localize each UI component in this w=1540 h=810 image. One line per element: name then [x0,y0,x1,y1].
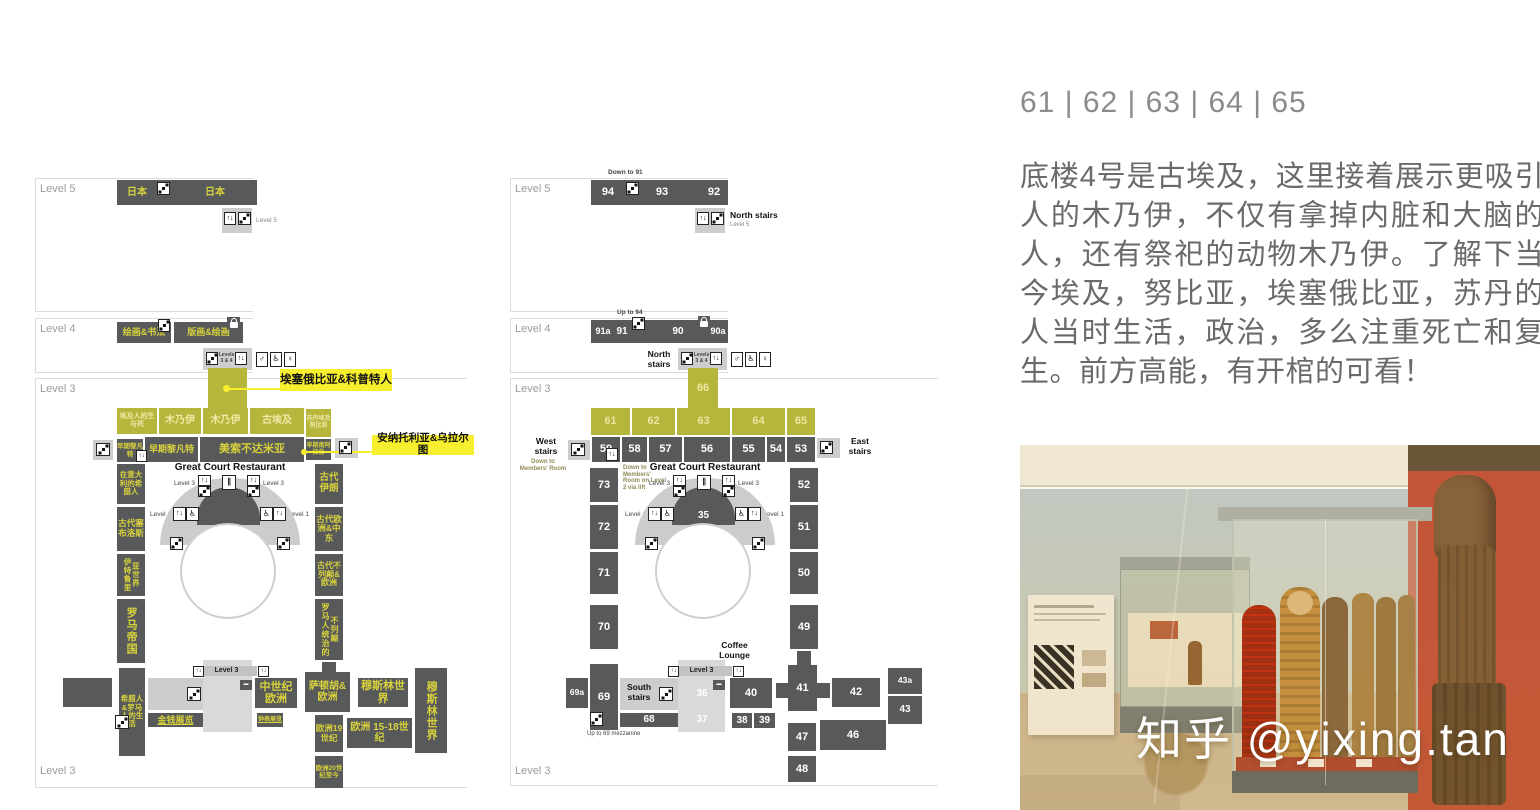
room-91: 91 [614,320,630,343]
stairs-icon [722,486,735,497]
room-37: 37 [690,713,714,727]
south-stairs-label: South stairs [623,683,655,702]
panel-photo [1082,650,1106,666]
money-gallery-label: 金钱展览 [157,715,193,725]
room-europe-20th: 欧洲20世纪至今 [315,756,343,788]
room-38: 38 [732,713,752,728]
room-49: 49 [790,605,818,649]
stairs-icon [206,352,218,365]
restaurant-icon: ∥ [697,475,711,490]
panel-photo [1082,673,1106,687]
stairs-icon [590,712,603,726]
museum-photo: 知乎 @yixing.tan [1020,445,1540,810]
stairs-icon [158,319,170,332]
room-36: 36 [690,687,714,701]
level3-bottom-label: Level 3 [40,765,75,777]
male-toilet-icon: ♂ [256,352,268,367]
room-93: 93 [652,180,672,205]
stairs-icon [673,486,686,497]
room-39: 39 [754,713,775,728]
room-68: 68 [620,713,678,727]
room-65: 65 [787,408,815,435]
lift-icon: ↑↓ [697,212,709,225]
stairs-icon [632,317,645,330]
stairs-icon [170,537,183,550]
room-egypt-life-death: 埃及人的生与死 [117,408,157,434]
page: Level 5 Level 4 Level 3 Level 3 日本 日本 ↑↓… [0,0,1540,810]
coffee-lounge-label: Coffee Lounge [707,641,762,660]
case-panels [1128,613,1242,687]
reading-room-circle [655,523,751,619]
level4-label: Level 4 [40,323,75,335]
room-japan-2: 日本 [201,180,229,205]
clocks-gallery-label: 钟表展览 [258,717,282,724]
shop-icon: ▬ [713,680,725,690]
watermark: 知乎 @yixing.tan [1136,703,1536,769]
room-64: 64 [732,408,785,435]
female-toilet-icon: ♀ [284,352,296,367]
levels-3-4-badge: Levels 3 & 4 [694,351,709,367]
room-early-south-arabia: 早期南阿拉伯 [306,439,331,460]
stairs-icon [198,486,211,497]
room-53: 53 [787,437,815,462]
stairs-icon [157,182,170,195]
room-47: 47 [788,723,816,751]
room-muslim-world-gallery: 穆斯林世界 [415,668,447,753]
level3-side-label: Level 3 [161,480,195,487]
room-money-gallery: 金钱展览 [148,713,203,727]
panel-text-line [1034,613,1106,615]
room-66: 66 [688,368,718,408]
room-73: 73 [590,468,618,502]
north-stairs-level: Level 5 [730,222,749,229]
room-52: 52 [790,468,818,502]
lift-icon: ↑↓ [733,666,744,677]
room-early-levant: 早期黎凡特 [145,437,198,462]
stairs-icon [238,212,251,225]
wheelchair-icon: ♿ [260,507,273,521]
lock-icon [227,317,240,329]
callout-line [230,388,280,390]
room-43a: 43a [888,668,922,694]
room-sutton-hoo-europe: 萨顿胡&欧洲 [305,672,350,712]
level3-side-label: Level 3 [738,480,772,487]
lift-icon: ↑↓ [258,666,269,677]
room-europe-19th: 欧洲19世纪 [315,715,343,752]
room-62: 62 [632,408,675,435]
stairs-icon [820,441,833,454]
room-roman-britain: 罗马人统治的不列颠 [315,599,343,660]
stairs-icon [571,443,585,456]
statue-body [1438,545,1496,691]
stairs-icon [752,537,765,550]
room-69a: 69a [566,678,588,708]
wheelchair-icon: ♿ [735,507,748,521]
level3-strip: Level 3 [671,666,732,676]
lift-icon: ↑↓ [710,352,722,365]
room-63: 63 [677,408,730,435]
level5-label: Level 5 [515,183,550,195]
level3-side-label: Level 3 [263,480,297,487]
great-court-restaurant-label: Great Court Restaurant [625,463,785,473]
wheelchair-icon: ♿ [186,507,199,521]
room-etruscan-world: 伊特鲁里亚世界 [117,554,145,596]
female-toilet-icon: ♀ [759,352,771,367]
room-94: 94 [598,180,618,205]
lift-icon: ↑↓ [136,450,147,462]
stairs-icon [277,537,290,550]
restaurant-icon: ∥ [222,475,236,490]
room-54: 54 [767,437,785,462]
article-paragraph: 底楼4号是古埃及，这里接着展示更吸引人的木乃伊，不仅有拿掉内脏和大脑的人，还有祭… [1020,158,1540,392]
room-46: 46 [820,720,886,750]
room-58: 58 [622,437,647,462]
room-40: 40 [730,678,772,708]
wheelchair-icon: ♿ [745,352,757,367]
room-clocks-gallery: 钟表展览 [257,713,283,727]
room-ancient-iran: 古代伊朗 [315,464,343,504]
room-90a: 90a [708,320,728,343]
male-toilet-icon: ♂ [731,352,743,367]
stairs-icon [115,715,129,729]
lift-icon: ↑↓ [247,475,260,486]
lift-icon: ↑↓ [606,448,618,461]
room-43: 43 [888,696,922,724]
callout-dot [223,385,230,392]
room-greek-roman-life: 希腊人&罗马人的生活 [119,668,145,756]
floor-map-chinese: Level 5 Level 4 Level 3 Level 3 日本 日本 ↑↓… [35,175,480,810]
level3-label: Level 3 [40,383,75,395]
wheelchair-icon: ♿ [270,352,282,367]
level5-note: Level 5 [256,217,277,224]
room-mummies-1: 木乃伊 [159,408,201,434]
east-stairs-label: East stairs [843,437,877,456]
room-muslim-world: 穆斯林世界 [358,678,408,707]
room-sudan-egypt-nubia: 苏丹埃及努比亚 [306,409,331,437]
room-medieval-europe: 中世纪欧洲 [255,678,297,708]
room-41: 41 [788,665,817,711]
room-block [63,678,112,707]
west-stairs-note: Down to Members' Room [518,459,568,472]
room-japan-1: 日本 [123,180,151,205]
room-70: 70 [590,605,618,649]
lock-icon [698,316,710,328]
level3-bottom-label: Level 3 [515,765,550,777]
room-greeks-in-italy: 在意大利的希腊人 [117,464,145,504]
floor-map-numbers: Level 5 Level 4 Level 3 Level 3 Down to … [510,175,955,810]
room-71: 71 [590,552,618,594]
lift-icon: ↑↓ [193,666,204,677]
rooms-heading: 61 | 62 | 63 | 64 | 65 [1020,86,1307,120]
stairs-icon [659,687,673,701]
north-stairs-label: North stairs [643,350,675,369]
callout-ethiopia-coptic: 埃塞俄比亚&科普特人 [280,369,392,391]
stairs-icon [339,441,352,454]
stairs-icon [187,687,201,701]
room-42: 42 [832,678,880,707]
lift-icon: ↑↓ [722,475,735,486]
stairs-icon [96,443,110,456]
up-to-94-note: Up to 94 [617,309,643,316]
lift-icon: ↑↓ [235,352,247,365]
level3-label: Level 3 [515,383,550,395]
down-to-91-note: Down to 91 [608,169,643,176]
room-61: 61 [591,408,630,435]
small-statue [1188,641,1202,685]
room-europe-15-18th: 欧洲 15-18世纪 [347,718,412,748]
wheelchair-icon: ♿ [661,507,674,521]
room-50: 50 [790,552,818,594]
room-roman-empire: 罗马帝国 [117,599,145,663]
stairs-icon [645,537,658,550]
mezzanine-note: Up to 69 mezzanine [587,731,640,738]
lift-icon: ↑↓ [648,507,661,521]
lift-icon: ↑↓ [673,475,686,486]
room-48: 48 [788,756,816,782]
stairs-icon [711,212,724,225]
stairs-icon [626,182,639,195]
room-block [776,683,788,698]
level4-label: Level 4 [515,323,550,335]
lift-icon: ↑↓ [173,507,186,521]
north-stairs-label: North stairs [730,211,778,221]
lift-icon: ↑↓ [198,475,211,486]
room-91a: 91a [593,320,613,343]
mummy-mask [1287,591,1313,615]
stairs-icon [681,352,693,365]
reading-room-circle [180,523,276,619]
panel-text-line [1034,619,1100,621]
lift-icon: ↑↓ [224,212,236,225]
room-57: 57 [649,437,682,462]
room-block [817,683,830,698]
room-mummies-2: 木乃伊 [203,408,248,434]
level5-label: Level 5 [40,183,75,195]
west-stairs-label: West stairs [526,437,566,456]
room-ancient-britain-europe: 古代不列颠&欧洲 [315,554,343,596]
room-56: 56 [684,437,730,462]
callout-anatolia-urartu: 安纳托利亚&乌拉尔图 [372,435,474,455]
room-90: 90 [668,320,688,343]
panel-graphic [1034,645,1074,689]
level3-strip: Level 3 [196,666,257,676]
lift-icon: ↑↓ [668,666,679,677]
room-mesopotamia: 美索不达米亚 [200,437,304,462]
lift-icon: ↑↓ [273,507,286,521]
room-block [797,651,811,665]
great-court-restaurant-label: Great Court Restaurant [150,463,310,473]
stairs-icon [247,486,260,497]
shop-icon: ▬ [240,680,252,690]
level3-side-label: Level 3 [636,480,670,487]
levels-3-4-badge: Levels 3 & 4 [219,351,234,367]
lift-icon: ↑↓ [748,507,761,521]
panel-text-line [1034,605,1094,608]
wall-case-top [1120,557,1250,569]
room-92: 92 [704,180,724,205]
room-55: 55 [732,437,765,462]
room-ancient-egypt: 古埃及 [250,408,304,434]
